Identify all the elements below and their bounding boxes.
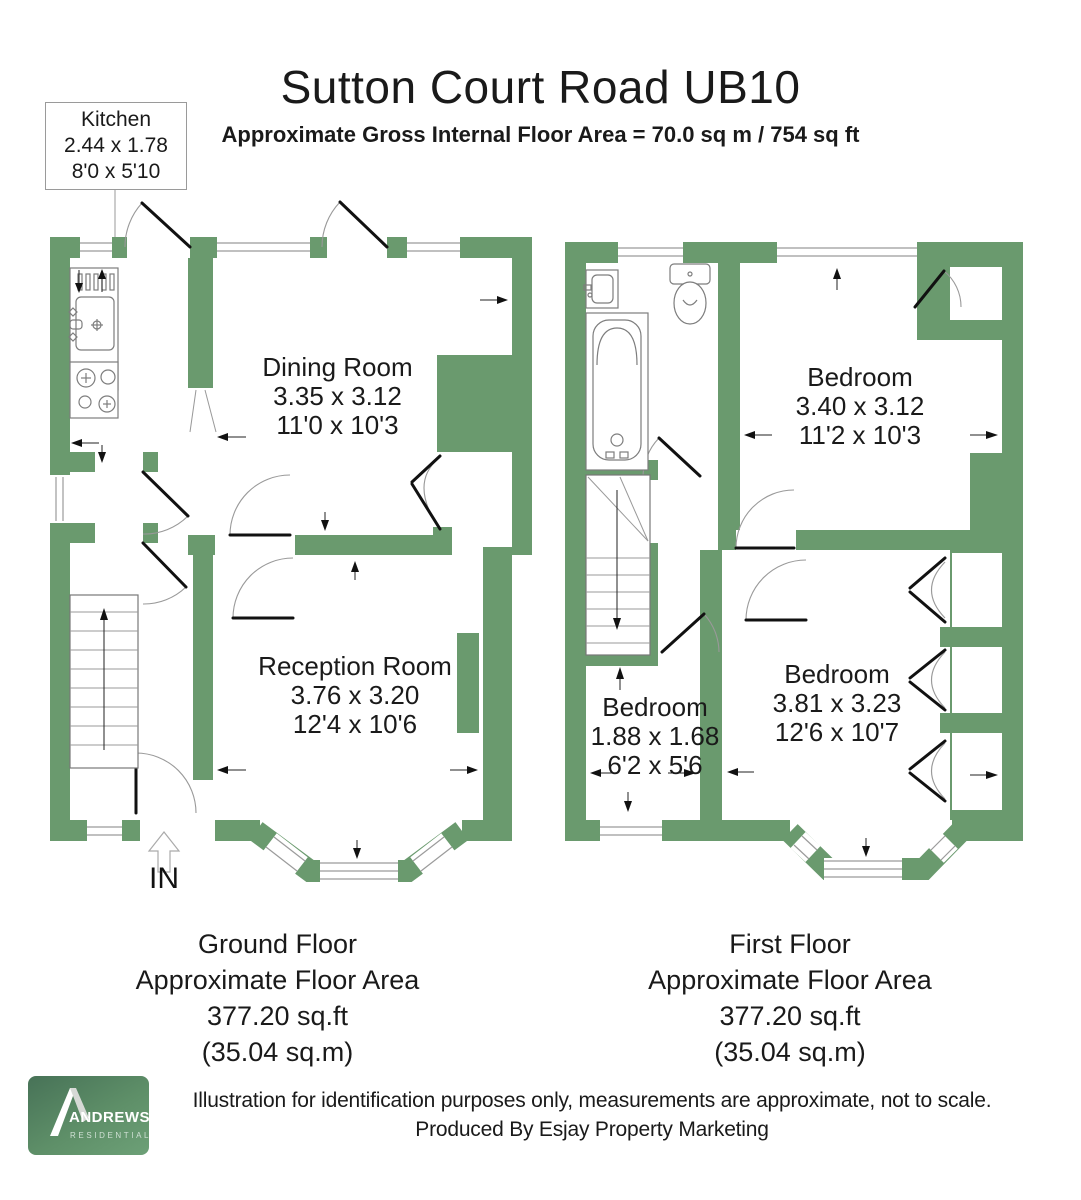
caption-sqm: (35.04 sq.m) <box>600 1034 980 1070</box>
room-name: Bedroom <box>742 660 932 689</box>
ground-floor-caption: Ground Floor Approximate Floor Area 377.… <box>90 926 465 1070</box>
caption-subtitle: Approximate Floor Area <box>600 962 980 998</box>
floorplan-page: { "header": { "title": "Sutton Court Roa… <box>0 0 1081 1200</box>
room-size-metric: 3.35 x 3.12 <box>215 382 460 411</box>
room-label-bedroom-2: Bedroom 1.88 x 1.68 6'2 x 5'6 <box>580 693 730 780</box>
caption-subtitle: Approximate Floor Area <box>90 962 465 998</box>
door-leaf <box>143 543 186 587</box>
room-label-dining: Dining Room 3.35 x 3.12 11'0 x 10'3 <box>215 353 460 440</box>
room-size-metric: 3.76 x 3.20 <box>230 681 480 710</box>
first-floor-plan <box>560 190 1028 902</box>
bathtub-icon <box>586 313 648 470</box>
room-label-bedroom-3: Bedroom 3.81 x 3.23 12'6 x 10'7 <box>742 660 932 747</box>
disclaimer: Illustration for identification purposes… <box>168 1086 1016 1144</box>
room-size-imperial: 8'0 x 5'10 <box>46 159 186 185</box>
room-name: Kitchen <box>46 107 186 133</box>
door-arc <box>143 587 186 604</box>
caption-title: First Floor <box>600 926 980 962</box>
room-size-imperial: 11'0 x 10'3 <box>215 411 460 440</box>
front-door-arc <box>136 753 196 813</box>
room-name: Reception Room <box>230 652 480 681</box>
room-name: Bedroom <box>580 693 730 722</box>
room-name: Bedroom <box>745 363 975 392</box>
door-arc <box>230 475 290 535</box>
room-size-imperial: 12'4 x 10'6 <box>230 710 480 739</box>
toilet-icon <box>670 264 710 324</box>
room-size-imperial: 6'2 x 5'6 <box>580 751 730 780</box>
caption-title: Ground Floor <box>90 926 465 962</box>
logo-brand: ANDREWS <box>69 1109 150 1126</box>
door-leaf <box>662 614 704 652</box>
room-name: Dining Room <box>215 353 460 382</box>
door-arc <box>233 558 293 618</box>
door-leaf <box>143 472 188 516</box>
room-size-metric: 1.88 x 1.68 <box>580 722 730 751</box>
disclaimer-line-1: Illustration for identification purposes… <box>168 1086 1016 1115</box>
cupboard-recess <box>950 267 1002 320</box>
room-label-bedroom-1: Bedroom 3.40 x 3.12 11'2 x 10'3 <box>745 363 975 450</box>
bay-window <box>256 831 462 879</box>
door-leaf <box>412 484 440 529</box>
door-leaf <box>412 456 440 482</box>
chimney-breast <box>970 453 1002 530</box>
room-size-metric: 3.81 x 3.23 <box>742 689 932 718</box>
logo-tagline: RESIDENTIAL <box>70 1131 151 1140</box>
stairs-down <box>586 475 650 655</box>
agency-logo: ANDREWS RESIDENTIAL <box>28 1076 149 1155</box>
disclaimer-line-2: Produced By Esjay Property Marketing <box>168 1115 1016 1144</box>
room-size-imperial: 11'2 x 10'3 <box>745 421 975 450</box>
hob-icon <box>70 362 118 418</box>
caption-sqft: 377.20 sq.ft <box>90 998 465 1034</box>
door-arc <box>746 560 806 620</box>
kitchen-callout: Kitchen 2.44 x 1.78 8'0 x 5'10 <box>45 102 187 190</box>
stairs-up <box>70 595 138 768</box>
ground-floor-plan: IN <box>45 190 537 902</box>
room-size-metric: 2.44 x 1.78 <box>46 133 186 159</box>
caption-sqft: 377.20 sq.ft <box>600 998 980 1034</box>
bay-window <box>790 832 960 877</box>
caption-sqm: (35.04 sq.m) <box>90 1034 465 1070</box>
entrance-label: IN <box>149 862 179 895</box>
room-size-imperial: 12'6 x 10'7 <box>742 718 932 747</box>
room-label-reception: Reception Room 3.76 x 3.20 12'4 x 10'6 <box>230 652 480 739</box>
opening-splay <box>190 390 196 432</box>
basin-icon <box>584 270 618 308</box>
first-floor-caption: First Floor Approximate Floor Area 377.2… <box>600 926 980 1070</box>
room-size-metric: 3.40 x 3.12 <box>745 392 975 421</box>
